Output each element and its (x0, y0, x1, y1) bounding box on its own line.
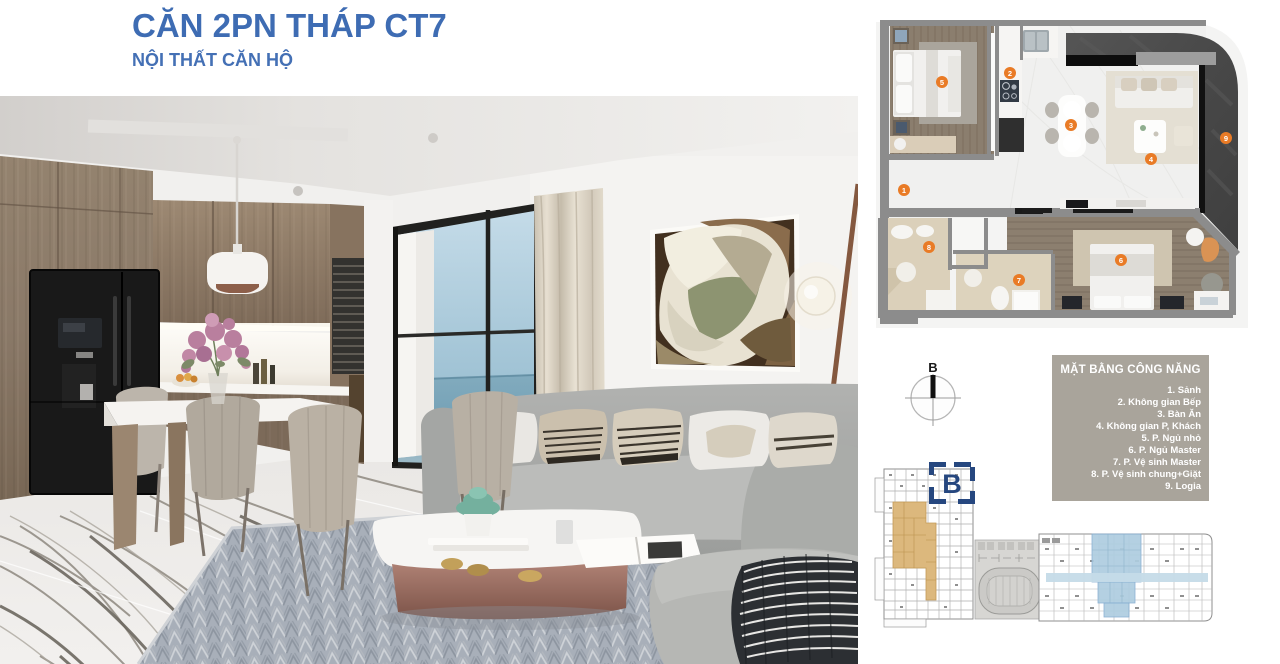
svg-text:B: B (928, 360, 937, 375)
svg-text:B: B (942, 469, 962, 499)
svg-text:1: 1 (902, 186, 906, 195)
svg-text:8: 8 (927, 243, 931, 252)
svg-text:9: 9 (1224, 134, 1228, 143)
svg-text:5: 5 (940, 78, 944, 87)
svg-text:7: 7 (1017, 276, 1021, 285)
svg-text:6: 6 (1119, 256, 1123, 265)
svg-text:2: 2 (1008, 69, 1012, 78)
svg-text:3: 3 (1069, 121, 1073, 130)
